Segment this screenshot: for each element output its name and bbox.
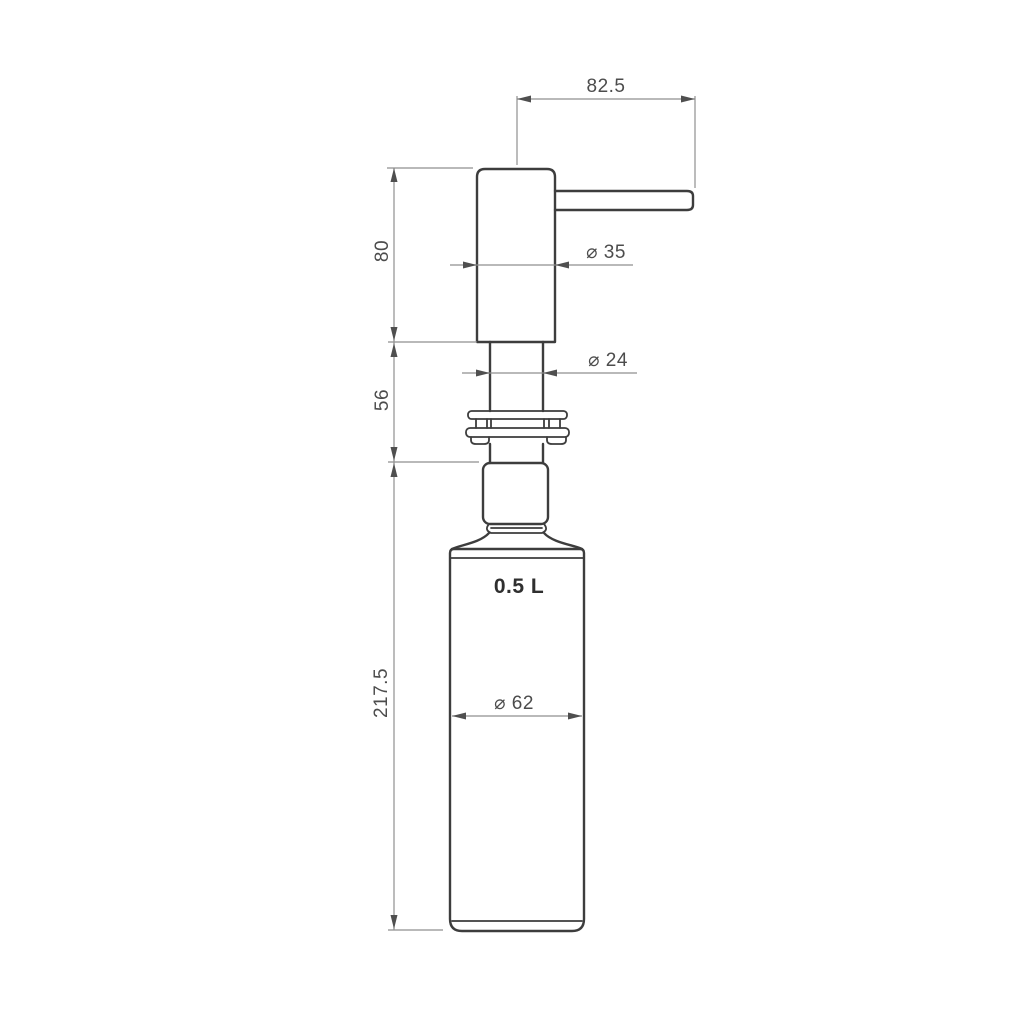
head-diameter-label: ⌀ 35 xyxy=(586,242,626,263)
extension-lines-spout-reach xyxy=(517,96,695,188)
arrowhead-right xyxy=(463,262,477,269)
part-outlines xyxy=(450,169,693,931)
arrowhead-down xyxy=(391,447,398,461)
bottle-shoulder-outline xyxy=(452,533,582,549)
spout-reach-label: 82.5 xyxy=(587,76,626,97)
neck-collar-outline xyxy=(487,524,546,533)
adapter-nut-outline xyxy=(483,463,548,524)
arrowhead-up xyxy=(391,343,398,357)
capacity-label: 0.5 L xyxy=(494,575,544,598)
dimension-spout-reach: 82.5 xyxy=(517,76,695,188)
dimension-annotations: 82.5 80 56 217.5 ⌀ 35 xyxy=(371,76,695,930)
flange-top-plate xyxy=(468,411,567,419)
bottle-body-outline xyxy=(450,549,584,931)
dispenser-drawing: 82.5 80 56 217.5 ⌀ 35 xyxy=(0,0,1024,1024)
dimension-bottle-diameter: ⌀ 62 xyxy=(452,693,582,720)
bottle-height-label: 217.5 xyxy=(371,668,392,718)
upper-tube-outline xyxy=(490,342,543,411)
arrowhead-right xyxy=(476,370,490,377)
arrowhead-left xyxy=(555,262,569,269)
arrowhead-down xyxy=(391,915,398,929)
arrowhead-up xyxy=(391,463,398,477)
arrowhead-left xyxy=(517,96,531,103)
arrowhead-left xyxy=(543,370,557,377)
arrowhead-down xyxy=(391,327,398,341)
arrowhead-right xyxy=(568,713,582,720)
neck-section-height-label: 56 xyxy=(372,389,393,411)
lower-tube-outline xyxy=(490,444,543,463)
pump-head-outline xyxy=(477,169,555,342)
arrowhead-right xyxy=(681,96,695,103)
bottle-diameter-label: ⌀ 62 xyxy=(494,693,534,714)
dimension-tube-diameter: ⌀ 24 xyxy=(462,350,637,377)
gasket-tab-left xyxy=(471,437,489,444)
arrowhead-left xyxy=(452,713,466,720)
spout-outline xyxy=(555,191,693,210)
flange-posts xyxy=(476,419,560,428)
pump-head-height-label: 80 xyxy=(372,240,393,262)
arrowhead-up xyxy=(391,168,398,182)
tube-diameter-label: ⌀ 24 xyxy=(588,350,628,371)
gasket-tab-right xyxy=(547,437,566,444)
technical-drawing-page: 82.5 80 56 217.5 ⌀ 35 xyxy=(0,0,1024,1024)
flange-bottom-plate xyxy=(466,428,569,437)
